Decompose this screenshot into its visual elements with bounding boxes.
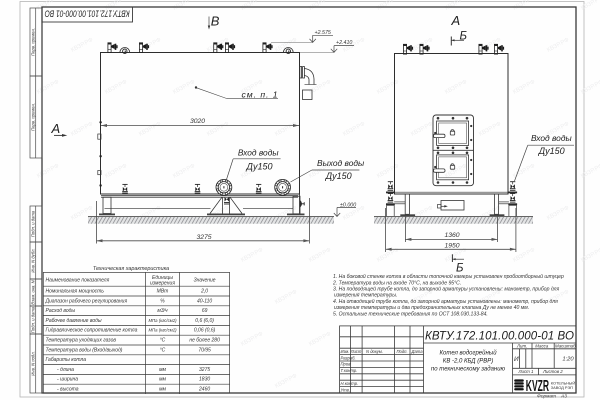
svg-text:±0.000: ±0.000 [340, 202, 356, 208]
svg-text:Б: Б [456, 263, 464, 275]
svg-text:1830: 1830 [199, 377, 210, 383]
svg-text:Рабочее давление воды: Рабочее давление воды [46, 318, 102, 324]
svg-text:МВт: МВт [157, 289, 169, 295]
svg-text:Значение: Значение [194, 278, 216, 284]
svg-text:Перв. примен.: Перв. примен. [31, 103, 36, 131]
svg-text:Т.контр.: Т.контр. [341, 368, 358, 373]
svg-text:3275: 3275 [196, 234, 211, 241]
svg-text:2,0: 2,0 [200, 289, 208, 295]
svg-text:69: 69 [202, 308, 208, 314]
svg-text:мм: мм [159, 377, 166, 383]
svg-text:Листов 2: Листов 2 [542, 369, 563, 374]
svg-text:Вход воды: Вход воды [238, 147, 279, 157]
svg-text:Масштаб: Масштаб [555, 343, 576, 348]
svg-text:3275: 3275 [199, 367, 210, 373]
svg-text:Вход воды: Вход воды [531, 133, 572, 143]
svg-text:Подп. и дата: Подп. и дата [31, 210, 36, 237]
svg-text:Дата: Дата [411, 349, 424, 354]
svg-text:Диапазон рабочего регулировани: Диапазон рабочего регулирования [45, 298, 128, 304]
svg-text:Н.контр.: Н.контр. [341, 381, 359, 386]
svg-text:измерения температуры.: измерения температуры. [334, 292, 397, 298]
svg-text:Формат: Формат [537, 394, 556, 400]
svg-text:0,6 (6,0): 0,6 (6,0) [195, 318, 214, 324]
svg-text:Лит.: Лит. [516, 343, 527, 348]
svg-text:не более 280: не более 280 [189, 338, 220, 344]
svg-text:- длина: - длина [57, 367, 74, 373]
svg-text:Температура воды (Вход/выход): Температура воды (Вход/выход) [46, 347, 123, 353]
svg-text:KVZR: KVZR [526, 378, 549, 395]
svg-text:Гидравлическое сопротивление к: Гидравлическое сопротивление котла [46, 328, 138, 334]
svg-text:измерения: измерения [150, 281, 175, 287]
svg-text:м3/ч: м3/ч [157, 308, 168, 314]
svg-text:В: В [211, 14, 220, 29]
svg-text:Габариты котла: Габариты котла [46, 357, 87, 363]
svg-text:Масса: Масса [535, 343, 549, 348]
svg-text:А: А [451, 13, 461, 28]
svg-text:КВ -2,0 КБД (РВР): КВ -2,0 КБД (РВР) [443, 359, 493, 365]
svg-text:N докум.: N докум. [366, 349, 383, 354]
svg-text:Температура уходящих газов: Температура уходящих газов [46, 338, 117, 344]
svg-text:3020: 3020 [190, 118, 205, 125]
svg-text:Расход воды: Расход воды [46, 308, 76, 314]
svg-text:мм: мм [159, 387, 166, 393]
svg-text:Ду150: Ду150 [538, 146, 565, 156]
svg-text:3. На подводящей трубе котла,: 3. На подводящей трубе котла, до запорно… [333, 285, 560, 292]
svg-text:Ду150: Ду150 [246, 161, 273, 171]
svg-text:Лист 1: Лист 1 [518, 369, 535, 374]
svg-text:И: И [514, 356, 519, 363]
svg-text:Ду150: Ду150 [325, 171, 352, 181]
svg-text:Наименование показателя: Наименование показателя [46, 278, 110, 284]
svg-text:Подп.: Подп. [397, 349, 408, 354]
svg-text:МПа (кгс/см2): МПа (кгс/см2) [148, 328, 177, 333]
svg-text:Котел водогрейный: Котел водогрейный [439, 350, 497, 357]
svg-text:Б: Б [460, 31, 468, 43]
svg-text:Инв. N дубл.: Инв. N дубл. [31, 248, 36, 272]
svg-text:А: А [51, 121, 61, 136]
svg-text:- высота: - высота [57, 387, 79, 393]
svg-text:°С: °С [160, 338, 166, 344]
svg-text:Изм. Лист: Изм. Лист [341, 349, 362, 354]
svg-text:5. Остальные технические треб: 5. Остальные технические требования по О… [333, 311, 488, 317]
svg-text:Техническая характеристика: Техническая характеристика [93, 266, 169, 272]
svg-text:КВТУ.172.101.00.000-01 ВО: КВТУ.172.101.00.000-01 ВО [425, 331, 574, 343]
svg-text:Перв. примен.: Перв. примен. [31, 28, 36, 56]
svg-text:мм: мм [159, 367, 166, 373]
svg-text:Взам. инв. N: Взам. инв. N [31, 279, 36, 304]
svg-text:по техническому заданию: по техническому заданию [431, 366, 506, 372]
svg-text:Разраб.: Разраб. [341, 355, 356, 360]
svg-text:4. На отводящей трубе котла,: 4. На отводящей трубе котла, до запорной… [333, 298, 558, 305]
svg-text:Пров.: Пров. [341, 362, 352, 367]
svg-text:измерения температуры и два пр: измерения температуры и два предохраните… [334, 305, 529, 311]
svg-text:70/95: 70/95 [198, 347, 211, 353]
svg-text:+2.575: +2.575 [315, 30, 331, 36]
svg-text:- ширина: - ширина [57, 377, 78, 383]
svg-text:Выход воды: Выход воды [317, 158, 364, 168]
svg-text:Подп. и дата: Подп. и дата [31, 306, 36, 333]
svg-text:МПа (кгс/см2): МПа (кгс/см2) [148, 318, 177, 323]
svg-text:1:20: 1:20 [562, 357, 574, 363]
svg-text:см. п. 1: см. п. 1 [242, 90, 278, 100]
svg-text:Инв. N подл.: Инв. N подл. [31, 351, 36, 375]
svg-text:1. На боковой стенке котла в: 1. На боковой стенке котла в области топ… [333, 273, 564, 280]
svg-text:2460: 2460 [198, 387, 210, 393]
svg-text:%: % [160, 298, 165, 304]
svg-text:Утв.: Утв. [341, 387, 351, 392]
svg-text:°С: °С [160, 347, 166, 353]
svg-text:КВТУ.172.101.00.000-01 ВО: КВТУ.172.101.00.000-01 ВО [45, 9, 130, 19]
svg-text:+2.410: +2.410 [336, 40, 352, 46]
svg-text:0,06 (0,6): 0,06 (0,6) [194, 328, 216, 334]
svg-text:ЗАВОД РЭП: ЗАВОД РЭП [551, 385, 573, 390]
svg-text:А3: А3 [560, 394, 567, 400]
svg-text:40-110: 40-110 [197, 298, 212, 304]
svg-text:1950: 1950 [444, 243, 459, 250]
svg-text:1360: 1360 [444, 232, 459, 239]
svg-text:Номинальная мощность: Номинальная мощность [46, 289, 105, 295]
